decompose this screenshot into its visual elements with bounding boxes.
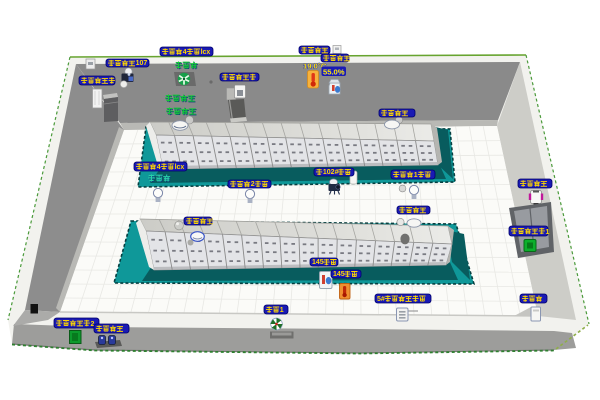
svg-text:145: 145	[312, 259, 324, 266]
svg-text:1: 1	[546, 229, 550, 236]
svg-text:4: 4	[183, 49, 187, 56]
svg-text:4: 4	[157, 164, 161, 171]
svg-text:55.0%: 55.0%	[323, 68, 345, 77]
svg-text:1: 1	[414, 172, 418, 179]
svg-text:102#: 102#	[323, 169, 339, 176]
svg-text:107: 107	[136, 60, 148, 67]
svg-text:lcx: lcx	[201, 49, 211, 56]
svg-text:lcx: lcx	[175, 164, 185, 171]
svg-text:145: 145	[333, 271, 345, 278]
svg-text:1: 1	[280, 307, 284, 314]
svg-text:2: 2	[251, 181, 255, 188]
svg-text:5#: 5#	[377, 296, 385, 303]
